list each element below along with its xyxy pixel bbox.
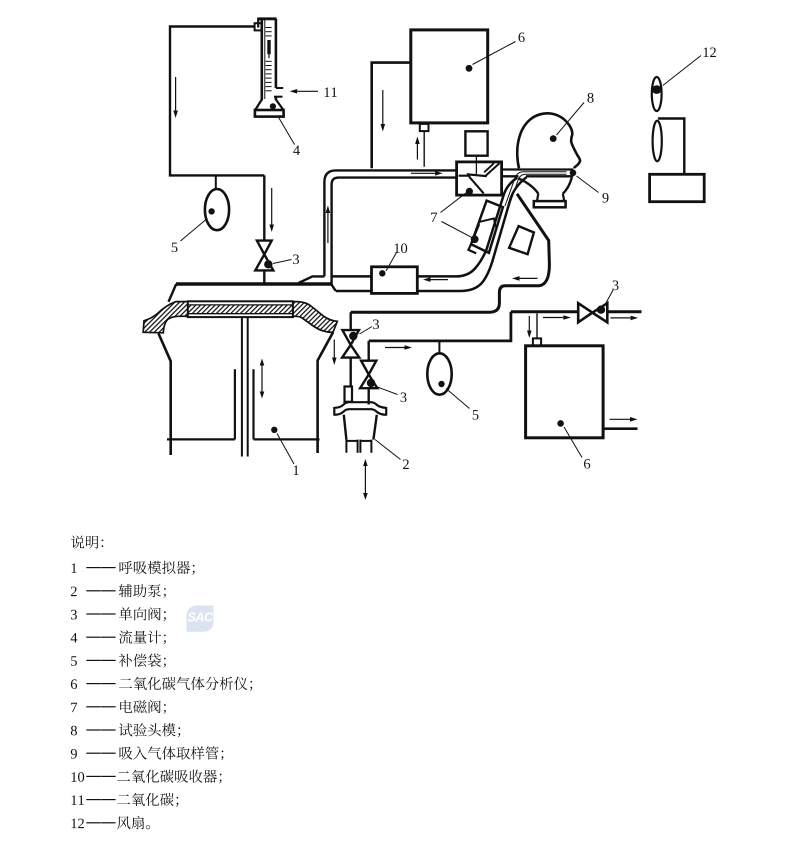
- svg-text:SAC: SAC: [188, 611, 214, 625]
